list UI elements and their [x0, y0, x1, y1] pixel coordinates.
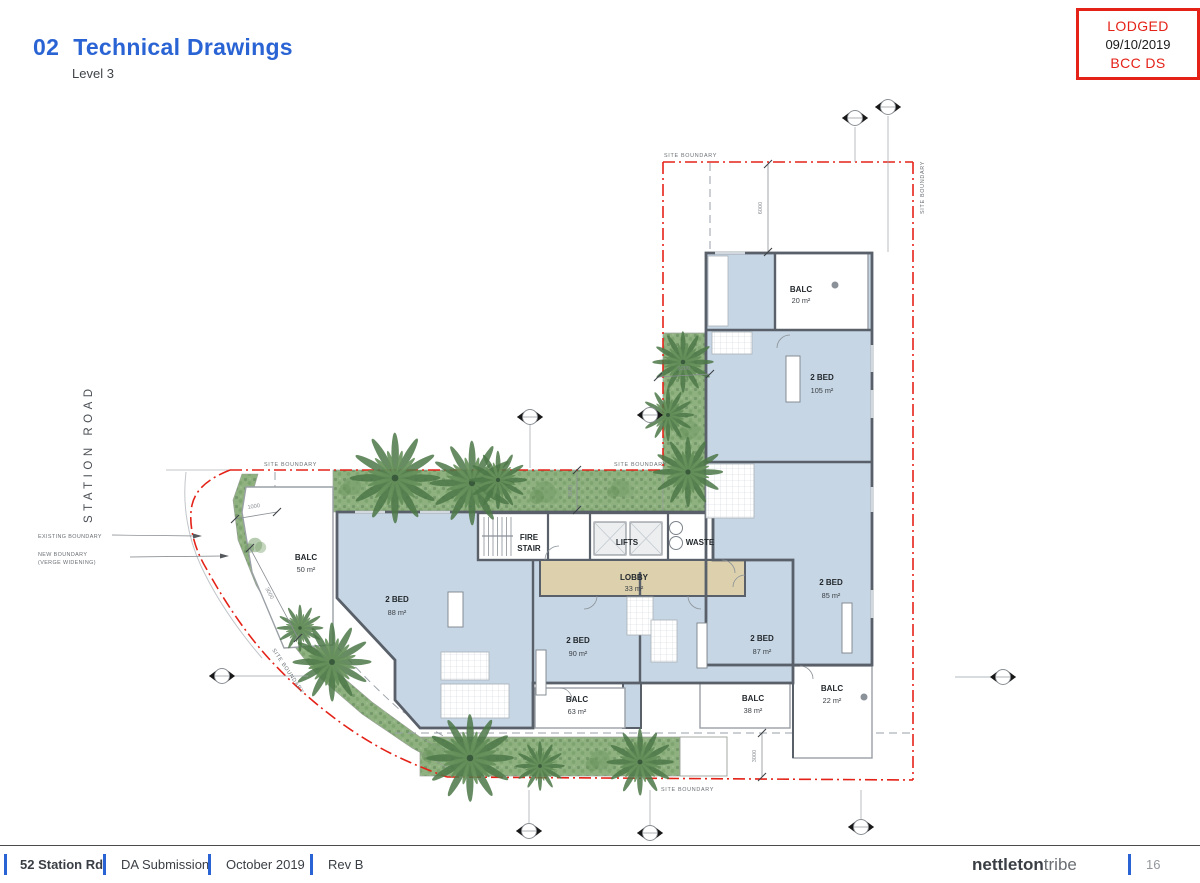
- footer-project: 52 Station Rd: [20, 846, 103, 883]
- unit-label: 2 BED: [819, 578, 843, 587]
- footer-revision: Rev B: [328, 846, 363, 883]
- footer-bar: [310, 854, 313, 875]
- firm-logo-light: tribe: [1044, 855, 1077, 875]
- footer-bar: [208, 854, 211, 875]
- site-boundary-label: SITE BOUNDARY: [614, 462, 667, 468]
- unit-label: 2 BED: [566, 636, 590, 645]
- column: [832, 282, 839, 289]
- dim-3000-bottom: 3000: [752, 750, 758, 762]
- footer-bar: [103, 854, 106, 875]
- footer-submission: DA Submission: [121, 846, 209, 883]
- core-label: WASTE: [686, 538, 715, 547]
- balcony-50: [242, 487, 333, 648]
- existing-boundary-label: EXISTING BOUNDARY: [38, 534, 102, 540]
- grid-marker: [517, 410, 543, 425]
- drawing-sheet: 02Technical Drawings Level 3 LODGED 09/1…: [0, 0, 1200, 883]
- unit-area: 85 m²: [822, 591, 841, 600]
- site-boundary-label: SITE BOUNDARY: [264, 462, 317, 468]
- unit-label: BALC: [790, 285, 812, 294]
- footer-date: October 2019: [226, 846, 305, 883]
- grid-marker: [842, 111, 868, 126]
- unit-area: 87 m²: [753, 647, 772, 656]
- balcony-22: [793, 666, 872, 758]
- site-boundary-label: SITE BOUNDARY: [270, 648, 305, 695]
- unit-area: 38 m²: [744, 706, 763, 715]
- unit-label: BALC: [566, 695, 588, 704]
- unit-area: 105 m²: [811, 386, 834, 395]
- dim-3200: 3200: [678, 366, 691, 373]
- lobby-area: 33 m²: [625, 584, 644, 593]
- core-label: LIFTS: [616, 538, 639, 547]
- unit-area: 20 m²: [792, 296, 811, 305]
- unit-label: 2 BED: [810, 373, 834, 382]
- column: [861, 694, 868, 701]
- unit-area: 22 m²: [823, 696, 842, 705]
- unit-area: 63 m²: [568, 707, 587, 716]
- unit-label: 2 BED: [385, 595, 409, 604]
- new-boundary-label-2: (VERGE WIDENING): [38, 560, 96, 566]
- site-boundary-label: SITE BOUNDARY: [661, 787, 714, 793]
- core-label: FIRE: [520, 533, 539, 542]
- firm-logo-bold: nettleton: [972, 855, 1044, 875]
- footer: 52 Station Rd DA Submission October 2019…: [0, 846, 1200, 883]
- footer-bar: [4, 854, 7, 875]
- station-road-label: STATION ROAD: [83, 384, 95, 523]
- grid-marker: [516, 824, 542, 839]
- grid-marker: [875, 100, 901, 115]
- unit-label: BALC: [742, 694, 764, 703]
- unit-area: 88 m²: [388, 608, 407, 617]
- grid-marker: [990, 670, 1016, 685]
- grid-marker: [848, 820, 874, 835]
- unit-area: 90 m²: [569, 649, 588, 658]
- grid-marker: [209, 669, 235, 684]
- new-boundary-label-1: NEW BOUNDARY: [38, 552, 87, 558]
- unit-label: BALC: [295, 553, 317, 562]
- core-label: STAIR: [517, 544, 541, 553]
- dim-3000-mid: 3000: [568, 485, 574, 497]
- unit-area: 50 m²: [297, 565, 316, 574]
- firm-logo: nettletontribe: [972, 846, 1077, 883]
- core-label: LOBBY: [620, 573, 649, 582]
- site-boundary-label: SITE BOUNDARY: [664, 153, 717, 159]
- unit-label: BALC: [821, 684, 843, 693]
- site-boundary-label: SITE BOUNDARY: [920, 161, 926, 214]
- unit-label: 2 BED: [750, 634, 774, 643]
- footer-bar: [1128, 854, 1131, 875]
- dim-6000: 6000: [758, 202, 764, 214]
- floor-plan-drawing: 6000 3200 3000 1000 3000 3000 EXISTING B…: [0, 0, 1200, 883]
- page-number: 16: [1146, 846, 1160, 883]
- grid-marker: [637, 826, 663, 841]
